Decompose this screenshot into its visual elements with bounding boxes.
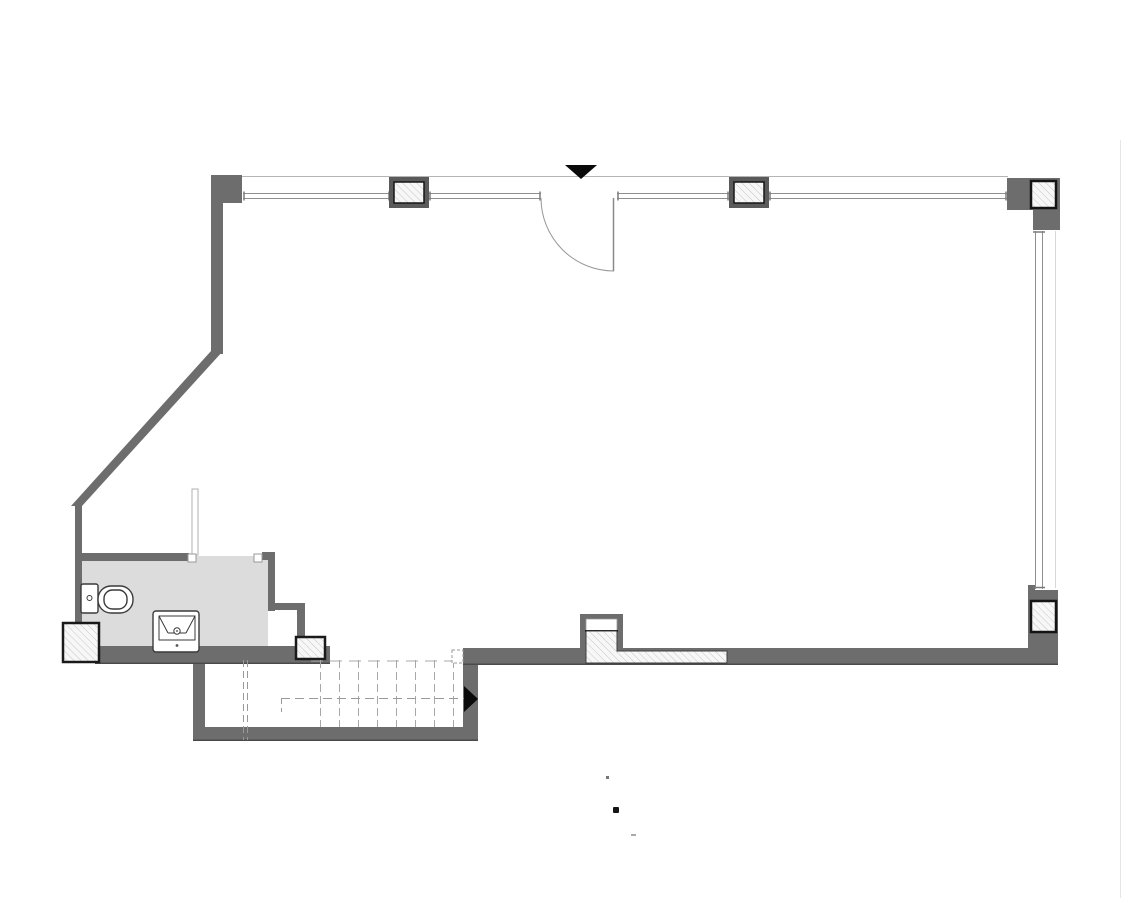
- hatched-wall-strip: [586, 631, 727, 663]
- column-stair: [296, 637, 325, 659]
- walls: [71, 175, 1060, 741]
- toilet-seat: [104, 590, 127, 609]
- stair-treads: [321, 660, 454, 727]
- wall-bathroom-top: [75, 553, 189, 561]
- wall-stair-bottom: [193, 727, 478, 741]
- stray-dash: [631, 834, 636, 836]
- stray-dot-large: [613, 807, 619, 813]
- right-glazing-end-ticks: [1033, 232, 1045, 588]
- sink-drain-dot: [176, 630, 178, 632]
- stray-marks: [606, 776, 636, 836]
- top-glazing-end-ticks: [244, 192, 1006, 201]
- top-window-band: [242, 177, 1008, 201]
- column-bottom-right: [1031, 601, 1056, 632]
- floor-plan-drawing: [0, 0, 1123, 898]
- wall-right-window-sill: [1028, 585, 1035, 593]
- door-swing-arc: [541, 198, 614, 271]
- stair-jamb-square: [452, 650, 463, 663]
- floor-plan-canvas: [0, 0, 1123, 898]
- bottom-wall-inlay: [585, 619, 727, 663]
- right-window-band: [1033, 231, 1056, 589]
- bathroom-door-jamb-left: [188, 554, 196, 562]
- top-glazing-lines: [243, 194, 1007, 199]
- wall-top-left-corner: [211, 175, 242, 203]
- entry-door: [541, 198, 614, 271]
- toilet-fixture: [81, 584, 133, 613]
- niche-white-box: [586, 619, 617, 631]
- column-top-right: [1031, 181, 1056, 208]
- wall-bathroom-step-v: [297, 603, 305, 639]
- stray-dot-small: [606, 776, 609, 779]
- column-top-2: [729, 177, 769, 208]
- bathroom-door-jamb-right: [254, 554, 262, 562]
- wall-diagonal: [71, 351, 223, 506]
- sink-faucet-dot: [176, 644, 179, 647]
- bathroom-partition-wall: [192, 489, 198, 555]
- right-glazing-lines: [1036, 231, 1043, 589]
- sink-fixture: [153, 611, 199, 652]
- wall-bathroom-right: [268, 552, 275, 611]
- toilet-flush-button: [87, 596, 92, 601]
- column-bottom-left: [63, 623, 99, 662]
- wall-left-upper: [211, 199, 223, 354]
- column-top-1: [389, 177, 429, 208]
- wall-bottom-main: [463, 648, 1058, 665]
